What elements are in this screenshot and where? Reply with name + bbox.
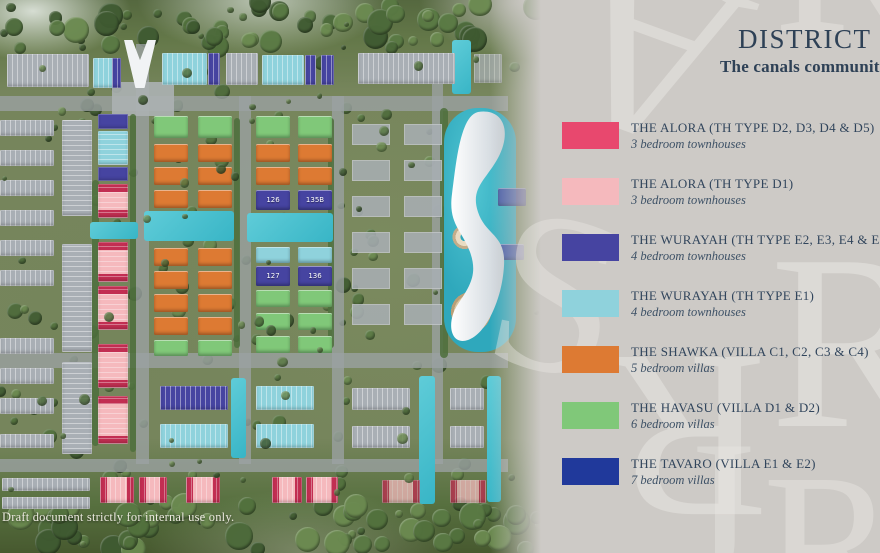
tree (60, 433, 65, 438)
tree (216, 164, 226, 174)
legend-item: THE ALORA (TH TYPE D1)3 bedroom townhous… (562, 178, 880, 205)
legend-swatch (562, 234, 619, 261)
legend-item: THE WURAYAH (TH TYPE E2, E3, E4 & E5)4 b… (562, 234, 880, 261)
tree-canopy-top (0, 0, 548, 553)
legend-name: THE HAVASU (VILLA D1 & D2) (631, 400, 820, 416)
legend-name: THE TAVARO (VILLA E1 & E2) (631, 456, 816, 472)
footer-disclaimer: Draft document strictly for internal use… (2, 510, 234, 525)
tree (341, 45, 347, 51)
tree (138, 95, 148, 105)
legend-name: THE ALORA (TH TYPE D2, D3, D4 & D5) (631, 120, 875, 136)
tree (8, 487, 13, 492)
legend-desc: 5 bedroom villas (631, 361, 869, 376)
tree (169, 461, 175, 467)
page-subtitle: The canals community (720, 57, 880, 77)
tree (286, 99, 291, 104)
tree (260, 438, 271, 449)
tree (213, 472, 219, 478)
legend-desc: 7 bedroom villas (631, 473, 816, 488)
legend-swatch (562, 290, 619, 317)
page-title: DISTRICT 1 (738, 24, 880, 55)
legend-item: THE WURAYAH (TH TYPE E1)4 bedroom townho… (562, 290, 880, 317)
tree (408, 162, 415, 169)
tree (310, 327, 316, 333)
legend-item: THE TAVARO (VILLA E1 & E2)7 bedroom vill… (562, 458, 880, 485)
tree (266, 325, 277, 336)
tree (249, 118, 255, 124)
tree (120, 23, 127, 30)
tree (104, 312, 114, 322)
legend-swatch (562, 178, 619, 205)
legend-swatch (562, 346, 619, 373)
tree (37, 396, 47, 406)
legend-item: THE ALORA (TH TYPE D2, D3, D4 & D5)3 bed… (562, 122, 880, 149)
tree (169, 438, 174, 443)
tree (249, 104, 255, 110)
tree (161, 259, 169, 267)
legend-name: THE WURAYAH (TH TYPE E1) (631, 288, 814, 304)
tree (473, 519, 483, 529)
tree (379, 126, 389, 136)
tree (339, 168, 347, 176)
tree (182, 214, 188, 220)
legend-panel: ARSRRJR DISTRICT 1 The canals community … (548, 0, 880, 553)
legend-desc: 3 bedroom townhouses (631, 137, 875, 152)
tree (182, 68, 192, 78)
tree (58, 107, 66, 115)
tree (39, 65, 46, 72)
tree (402, 407, 410, 415)
tree (79, 44, 86, 51)
tree (317, 347, 323, 353)
legend-list: THE ALORA (TH TYPE D2, D3, D4 & D5)3 bed… (562, 122, 880, 514)
legend-desc: 3 bedroom townhouses (631, 193, 793, 208)
tree (239, 13, 246, 20)
legend-swatch (562, 458, 619, 485)
tree (227, 7, 233, 13)
legend-item: THE SHAWKA (VILLA C1, C2, C3 & C4)5 bedr… (562, 346, 880, 373)
tree (180, 178, 190, 188)
tree (317, 93, 323, 99)
tree (433, 290, 438, 295)
tree (238, 321, 246, 329)
legend-name: THE SHAWKA (VILLA C1, C2, C3 & C4) (631, 344, 869, 360)
legend-desc: 6 bedroom villas (631, 417, 820, 432)
tree (240, 477, 246, 483)
tree (414, 61, 424, 71)
tree (197, 459, 202, 464)
tree (289, 512, 297, 520)
tree (266, 260, 271, 265)
tree (277, 357, 288, 368)
legend-desc: 4 bedroom townhouses (631, 305, 814, 320)
legend-item: THE HAVASU (VILLA D1 & D2)6 bedroom vill… (562, 402, 880, 429)
tree (344, 22, 349, 27)
tree (473, 56, 480, 63)
tree (281, 391, 290, 400)
tree (2, 176, 7, 181)
legend-name: THE ALORA (TH TYPE D1) (631, 176, 793, 192)
tree (79, 394, 90, 405)
tree (356, 206, 362, 212)
tree (408, 36, 418, 46)
tree (231, 172, 240, 181)
tree (143, 215, 151, 223)
legend-swatch (562, 122, 619, 149)
masterplan-map: 126135B127136 Draft document strictly fo… (0, 0, 548, 553)
tree (376, 142, 387, 153)
masterplan-page: 126135B127136 Draft document strictly fo… (0, 0, 880, 553)
tree (198, 33, 205, 40)
legend-desc: 4 bedroom townhouses (631, 249, 880, 264)
tree (397, 433, 408, 444)
tree (404, 473, 413, 482)
legend-name: THE WURAYAH (TH TYPE E2, E3, E4 & E5) (631, 232, 880, 248)
tree (381, 109, 391, 119)
legend-swatch (562, 402, 619, 429)
tree (334, 489, 341, 496)
tree (254, 316, 265, 327)
